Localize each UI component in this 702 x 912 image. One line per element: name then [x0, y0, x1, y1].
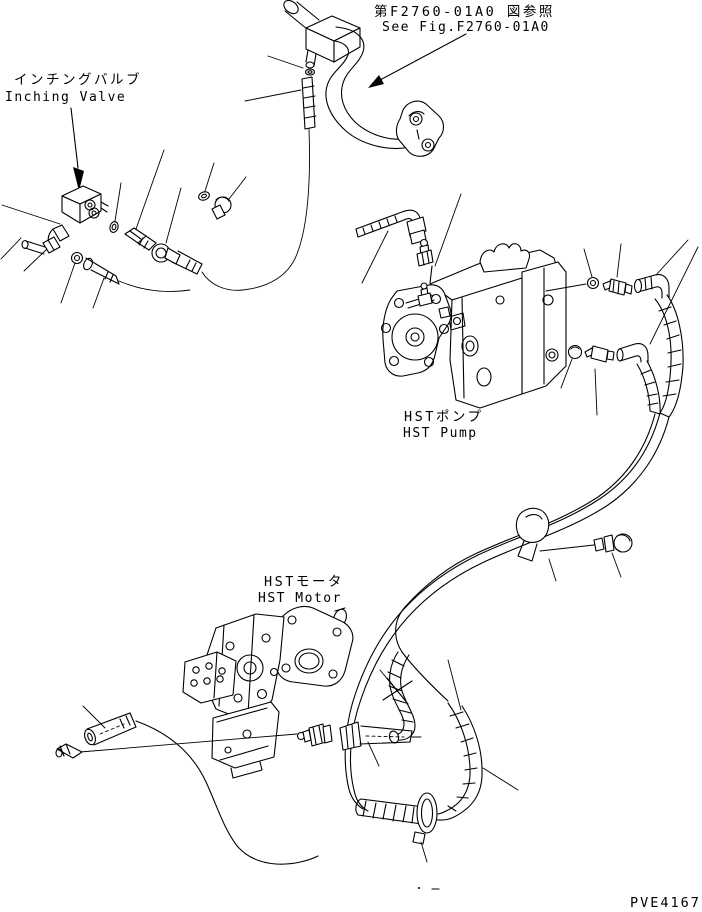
- elbow-fitting: [635, 280, 642, 293]
- inching-valve-label-jp: インチングバルブ: [14, 71, 142, 88]
- nut: [72, 253, 83, 264]
- fitting: [609, 279, 626, 295]
- ref-note-arrow: [368, 34, 466, 88]
- hst-pump-assembly: [382, 240, 567, 409]
- arrowhead-icon: [368, 75, 384, 88]
- ref-note-jp: 第F2760-01A0 図参照: [374, 3, 555, 20]
- motor-valve-block: [183, 652, 236, 703]
- bottom-left-hose-end: [56, 706, 136, 758]
- clamp-bolt: [540, 534, 632, 552]
- hst-motor-assembly: [183, 606, 353, 778]
- hst-pump-label-en: HST Pump: [403, 426, 478, 441]
- middle-elbow-hose: [356, 194, 461, 283]
- spiral-hose-horizontal: [356, 793, 437, 844]
- right-fittings-lower: [561, 247, 698, 415]
- right-fittings-upper: [546, 240, 688, 298]
- drawing-code: PVE4167: [630, 895, 701, 911]
- pump-top-cap: [480, 244, 530, 272]
- hose-nipple: [302, 77, 315, 129]
- o-ring: [588, 278, 599, 289]
- hst-motor-label-jp: HSTモータ: [264, 574, 344, 590]
- fitting: [591, 346, 608, 362]
- hose-clamp: [516, 508, 548, 561]
- parts-diagram-page: 第F2760-01A0 図参照 See Fig.F2760-01A0 インチング…: [0, 0, 702, 912]
- ref-note-en: See Fig.F2760-01A0: [382, 20, 550, 35]
- o-ring: [109, 221, 120, 234]
- small-bolt-and-oring: [197, 163, 246, 219]
- hst-pump-label-jp: HSTポンプ: [404, 409, 483, 425]
- o-ring: [306, 69, 315, 75]
- elbow-fitting: [617, 349, 623, 361]
- inching-valve-assembly: [1, 108, 202, 308]
- inching-valve-label-en: Inching Valve: [5, 90, 126, 105]
- diagram-canvas: 第F2760-01A0 図参照 See Fig.F2760-01A0 インチング…: [0, 0, 702, 912]
- clamp-leader-lines: [549, 553, 621, 581]
- hst-motor-label-en: HST Motor: [258, 591, 342, 606]
- banded-hose-right-lower: [637, 361, 660, 414]
- spiral-hose-large: [431, 703, 482, 820]
- hose-end-nut: [340, 722, 361, 750]
- reference-valve-assembly: [202, 0, 444, 290]
